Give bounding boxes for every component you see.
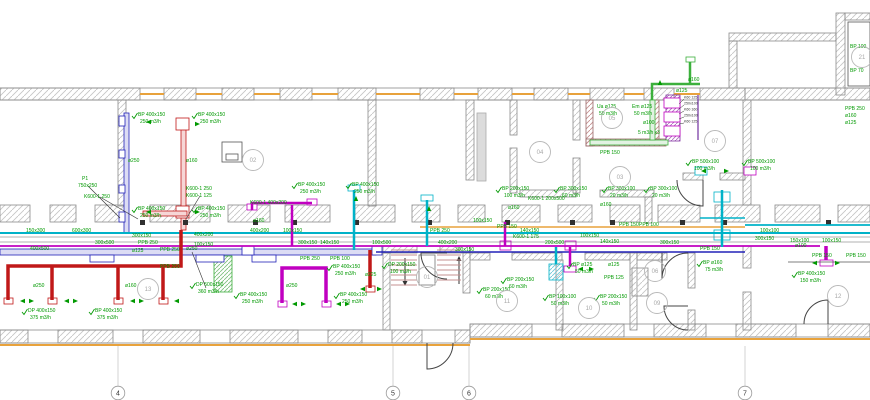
duct-label: 150x300 <box>26 228 45 234</box>
window <box>376 93 420 95</box>
duct-label: 375 m3/h <box>30 315 51 321</box>
duct-label: BP 400x150 <box>138 112 165 118</box>
window <box>196 93 222 95</box>
damper <box>372 246 382 255</box>
duct-label: BP 100x100 <box>549 294 576 300</box>
duct-label: 600x300 <box>72 228 91 234</box>
wall-segment <box>420 88 454 100</box>
wall-segment <box>562 324 624 337</box>
duct-label: 750x250 <box>78 183 97 189</box>
duct-label: 375 m3/h <box>97 315 118 321</box>
wall-segment <box>845 13 870 20</box>
duct-label: 150 m3/h <box>800 278 821 284</box>
duct-label: PPB 125 <box>604 275 624 281</box>
grille <box>119 185 125 193</box>
grid-axis-label: 6 <box>467 391 471 398</box>
duct-label: 250 m3/h <box>200 119 221 125</box>
equipment-box <box>226 154 238 160</box>
valve <box>570 220 575 225</box>
duct-label: 100 m3/h <box>750 166 771 172</box>
duct-label: 100x150 <box>822 238 841 244</box>
duct-label: K60 125 <box>684 120 697 124</box>
check-tick-icon <box>686 160 692 166</box>
check-tick-icon <box>132 207 138 213</box>
wall-segment <box>466 100 474 180</box>
wall-segment <box>729 33 836 41</box>
duct-label: 100x150 <box>194 242 213 248</box>
duct-label: PPB 150 <box>812 253 832 259</box>
duct-label: 250 m3/h <box>242 299 263 305</box>
wall-segment <box>50 205 76 222</box>
duct-label: ø250 <box>33 283 45 289</box>
room-number: 09 <box>654 301 661 307</box>
wall-segment <box>470 253 490 260</box>
duct-label: 400x200 <box>250 228 269 234</box>
flow-arrow-icon <box>812 261 817 265</box>
duct-label: PPB 250 <box>138 240 158 246</box>
wall-segment <box>164 88 196 100</box>
duct-label: ø160 <box>600 202 612 208</box>
diffuser <box>196 255 224 262</box>
wall-segment <box>534 88 568 100</box>
flow-arrow-icon <box>73 299 78 303</box>
wall-segment <box>743 246 751 268</box>
ahu-section <box>664 98 680 108</box>
duct-label: 20 m3/h <box>610 193 628 199</box>
duct-label: BP 300x100 <box>650 186 677 192</box>
wall-segment <box>0 88 140 100</box>
wall-segment <box>729 41 737 88</box>
flow-arrow-icon <box>139 299 144 303</box>
wall-segment <box>222 88 254 100</box>
flow-arrow-icon <box>336 302 341 306</box>
duct-label: BP 300x150 <box>560 186 587 192</box>
wall-segment <box>654 324 706 337</box>
wall-segment <box>610 205 640 222</box>
window <box>568 93 590 95</box>
duct-label: 250 m3/h <box>354 189 375 195</box>
wall-segment <box>838 205 870 222</box>
grille <box>119 150 125 158</box>
duct-label: BP 500x100 <box>692 159 719 165</box>
room-number: 12 <box>835 294 842 300</box>
wall-segment <box>463 253 470 293</box>
flow-arrow-icon <box>377 287 382 291</box>
duct-label: BP 70 <box>850 68 864 74</box>
duct-label: 60 m3/h <box>485 294 503 300</box>
green-duct <box>590 140 668 145</box>
check-tick-icon <box>234 293 240 299</box>
door-strip <box>477 113 486 181</box>
valve <box>680 220 685 225</box>
wall-segment <box>573 100 580 140</box>
wall-segment <box>775 205 820 222</box>
duct-label: PPB 250 <box>430 228 450 234</box>
room-number: 11 <box>504 299 511 305</box>
duct-label: 400x500 <box>30 246 49 252</box>
duct-label: ø125 <box>132 248 144 254</box>
duct-label: ø160 <box>186 158 198 164</box>
duct-label: BP 400x150 <box>340 292 367 298</box>
wall-segment <box>590 88 624 100</box>
duct-label: 400x200 <box>194 232 213 238</box>
duct-label: 50 m3/h <box>634 111 652 117</box>
duct-label: BP 200x150 <box>502 186 529 192</box>
check-tick-icon <box>496 187 502 193</box>
room-number: 07 <box>712 139 719 145</box>
grille <box>686 57 695 62</box>
duct-label: K600-1 200x500 <box>528 196 565 202</box>
duct-label: PPB 100 <box>639 222 659 228</box>
wall-segment <box>355 205 395 222</box>
check-tick-icon <box>543 295 549 301</box>
duct-label: 250 m3/h <box>200 213 221 219</box>
duct-label: PPB 150 <box>619 222 639 228</box>
grid-axis-label: 7 <box>743 391 747 398</box>
duct-label: BP 400x150 <box>198 112 225 118</box>
floor-plan-svg: BP 400x150250 m3/hBP 400x150250 m3/hBP 4… <box>0 0 870 400</box>
duct-label: ø100 <box>643 120 655 126</box>
duct-label: 300x150 <box>455 247 474 253</box>
flow-arrow-icon <box>64 299 69 303</box>
grille <box>119 212 125 222</box>
duct-label: 250 m3/h <box>300 189 321 195</box>
room-number: 06 <box>652 269 659 275</box>
wall-segment <box>828 324 870 337</box>
duct-label: BP ø125 <box>573 262 593 268</box>
duct-label: 75 m3/h <box>705 267 723 273</box>
duct-label: K600-1 250 <box>84 194 110 200</box>
duct-label: 300x150 <box>132 233 151 239</box>
room-number: 01 <box>424 275 431 281</box>
duct-label: BP 400x150 <box>298 182 325 188</box>
wall-segment <box>510 100 517 135</box>
duct-label: 50 m3/h <box>575 269 593 275</box>
check-tick-icon <box>697 261 703 267</box>
duct-label: ø125 <box>676 88 688 94</box>
duct-label: 100x500 <box>372 240 391 246</box>
check-tick-icon <box>477 288 483 294</box>
duct-label: ø160 <box>125 283 137 289</box>
sill <box>0 344 470 346</box>
duct-label: PPB 150 <box>846 253 866 259</box>
duct-label: 50 m3/h <box>551 301 569 307</box>
duct-label: BP 400x150 <box>95 308 122 314</box>
duct-label: ø125 <box>608 262 620 268</box>
wall-segment <box>558 205 592 222</box>
duct-label: 360 m3/h <box>198 289 219 295</box>
duct-label: BP ø160 <box>703 260 723 266</box>
duct-label: PPB 250 <box>300 256 320 262</box>
duct-label: 100x100 <box>760 228 779 234</box>
duct-label: BP 400x150 <box>352 182 379 188</box>
duct-label: 300x150 <box>298 240 317 246</box>
check-tick-icon <box>792 272 798 278</box>
flow-arrow-icon <box>658 80 662 85</box>
duct-label: K600-1 250 <box>186 186 212 192</box>
duct-label: 140x150 <box>600 239 619 245</box>
duct-label: ø160 <box>845 113 857 119</box>
check-tick-icon <box>334 293 340 299</box>
duct-label: PPB 150 <box>497 224 517 230</box>
wall-segment <box>58 330 113 343</box>
check-tick-icon <box>132 113 138 119</box>
check-tick-icon <box>292 183 298 189</box>
flow-arrow-icon <box>835 261 840 265</box>
floor-plan-stage: BP 400x150250 m3/hBP 400x150250 m3/hBP 4… <box>0 0 870 400</box>
valve <box>140 220 145 225</box>
door <box>427 343 453 369</box>
duct-label: BP 400x150 <box>138 206 165 212</box>
duct-label: 100 m3/h <box>504 193 525 199</box>
room-number: 13 <box>145 287 152 293</box>
room-number: 03 <box>617 175 624 181</box>
duct-label: 100x150 <box>580 233 599 239</box>
wall-segment <box>688 310 695 330</box>
duct-label: 100 m3/h <box>694 166 715 172</box>
wall-segment <box>720 173 745 180</box>
duct-label: ø125 <box>845 120 857 126</box>
window <box>624 93 644 95</box>
flow-arrow-icon <box>130 299 135 303</box>
duct-label: BP 400x150 <box>333 264 360 270</box>
duct-label: 250x100 <box>684 102 698 106</box>
duct-label: ø250 <box>286 283 298 289</box>
duct-label: PPB 250 <box>160 264 180 270</box>
wall-segment <box>512 253 562 260</box>
duct-label: PPB 100 <box>330 256 350 262</box>
duct-label: 250 m3/h <box>140 213 161 219</box>
duct-label: K600-1 175 <box>513 234 539 240</box>
duct-label: DP 400x150 <box>28 308 56 314</box>
window <box>140 93 164 95</box>
wall-segment <box>470 324 532 337</box>
wall-segment <box>338 88 376 100</box>
duct-label: BP 500x100 <box>748 159 775 165</box>
duct-label: ø160 <box>508 205 520 211</box>
duct-label: 60 m3/h <box>562 193 580 199</box>
duct-label: PPB 150 <box>700 246 720 252</box>
flow-arrow-icon <box>29 299 34 303</box>
duct-drop-box <box>549 264 563 280</box>
flow-arrow-icon <box>174 299 179 303</box>
wall-segment <box>632 268 648 296</box>
duct-label: 300x150 <box>660 240 679 246</box>
wall-segment <box>328 330 362 343</box>
check-tick-icon <box>22 309 28 315</box>
duct-label: ø160 <box>253 218 265 224</box>
duct-label: 250 m3/h <box>140 119 161 125</box>
wall-segment <box>143 330 200 343</box>
grille <box>119 116 125 126</box>
duct-label: PPB 150 <box>600 150 620 156</box>
duct-label: BP 400x150 <box>240 292 267 298</box>
duct-label: BP 400x150 <box>198 206 225 212</box>
duct-label: K60 160 <box>684 108 697 112</box>
duct-label: 250 m3/h <box>335 271 356 277</box>
flow-arrow-icon <box>724 169 729 173</box>
duct-label: PPB 250 <box>845 106 865 112</box>
check-tick-icon <box>501 278 507 284</box>
room-number: 04 <box>537 150 544 156</box>
duct-label: 300x500 <box>95 240 114 246</box>
room-number: 21 <box>859 55 866 61</box>
duct-label: ø225 <box>365 272 377 278</box>
ahu-section <box>664 126 680 136</box>
flow-arrow-icon <box>292 302 297 306</box>
sill <box>470 338 870 340</box>
duct-label: BP 200x150 <box>507 277 534 283</box>
duct-label: 5 m3/h x3 <box>638 130 660 136</box>
check-tick-icon <box>190 283 196 289</box>
flow-arrow-icon <box>301 302 306 306</box>
duct-label: K60 125 <box>684 96 697 100</box>
ahu-section <box>664 112 680 122</box>
wall-segment <box>743 100 751 205</box>
check-tick-icon <box>89 309 95 315</box>
window <box>512 93 534 95</box>
valve <box>183 220 188 225</box>
window <box>454 93 478 95</box>
wall-segment <box>836 13 845 95</box>
wall-segment <box>743 292 751 330</box>
grille <box>176 118 189 130</box>
wall-segment <box>230 330 298 343</box>
top-right-room-inner <box>848 22 870 86</box>
duct-label: 140x150 <box>320 240 339 246</box>
duct-label: ø160 <box>688 77 700 83</box>
door <box>677 180 703 206</box>
duct-label: 300x150 <box>755 236 774 242</box>
flow-arrow-icon <box>360 287 365 291</box>
duct-label: 100 m3/h <box>390 269 411 275</box>
wall-segment <box>585 253 630 260</box>
grid-axis-label: 4 <box>116 391 120 398</box>
wall-segment <box>0 205 30 222</box>
duct-label: 200x500 <box>545 240 564 246</box>
flow-arrow-icon <box>20 299 25 303</box>
wall-segment <box>645 197 652 223</box>
duct-label: BP 200x150 <box>483 287 510 293</box>
wall-segment <box>478 88 512 100</box>
duct-label: ø250 <box>128 158 140 164</box>
window <box>254 93 280 95</box>
duct-label: Em ø125 <box>632 104 653 110</box>
duct-label: 20 m3/h <box>652 193 670 199</box>
duct-label: K600-1 125 <box>186 193 212 199</box>
duct-label: 250x100 <box>684 114 698 118</box>
diffuser <box>252 255 276 262</box>
duct-label: 50 m3/h <box>602 301 620 307</box>
check-tick-icon <box>192 113 198 119</box>
room-number: 10 <box>586 306 593 312</box>
duct-label: BP 300x100 <box>608 186 635 192</box>
duct-label: DP 200x150 <box>388 262 416 268</box>
duct-label: 100x150 <box>473 218 492 224</box>
duct-label: DP 500x150 <box>196 282 224 288</box>
check-tick-icon <box>327 265 333 271</box>
duct-label: 100x150 <box>283 228 302 234</box>
room-number: 05 <box>609 116 616 122</box>
wall-segment <box>688 253 695 288</box>
duct-label: BP 200x150 <box>600 294 627 300</box>
wall-segment <box>745 88 870 100</box>
duct-label: 250 m3/h <box>342 299 363 305</box>
grid-axis-label: 5 <box>391 391 395 398</box>
duct-label: ø100 <box>795 243 807 249</box>
door <box>804 300 828 324</box>
duct-label: PPB 250 <box>160 247 180 253</box>
wall-segment <box>658 205 700 222</box>
wall-segment <box>280 88 312 100</box>
diffuser <box>820 260 833 266</box>
duct-label: 60 m3/h <box>509 284 527 290</box>
damper <box>242 246 254 255</box>
wall-segment <box>700 88 745 100</box>
wall-segment <box>392 330 422 343</box>
duct-label: 400x200 <box>438 240 457 246</box>
valve <box>610 220 615 225</box>
room-number: 02 <box>250 158 257 164</box>
duct-label: K600-1 400x200 <box>250 200 287 206</box>
wall-segment <box>0 330 28 343</box>
window <box>312 93 338 95</box>
duct-label: P1 <box>82 176 88 182</box>
duct-label: BP 400x150 <box>798 271 825 277</box>
diffuser <box>90 255 114 262</box>
wall-segment <box>455 330 470 343</box>
